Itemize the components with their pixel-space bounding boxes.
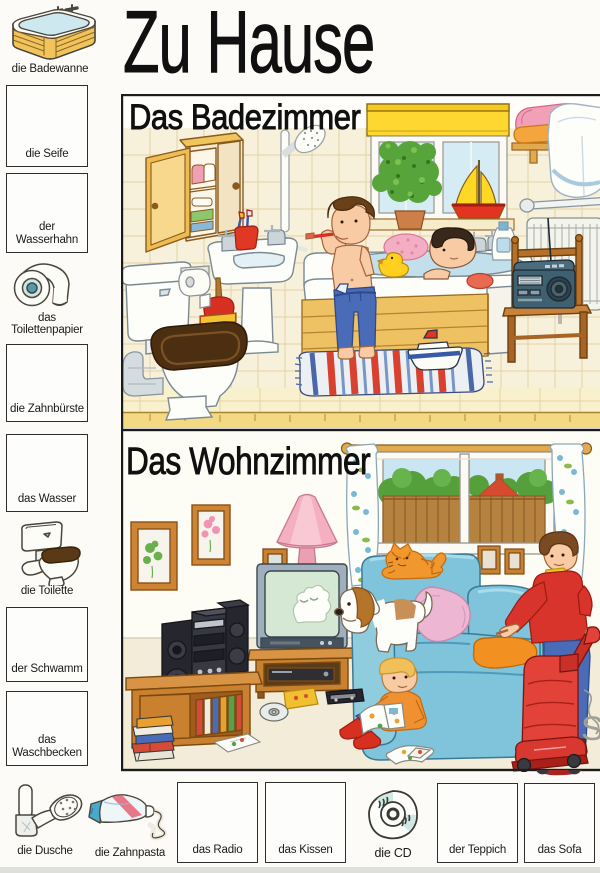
svg-text:S: S [581,710,600,748]
